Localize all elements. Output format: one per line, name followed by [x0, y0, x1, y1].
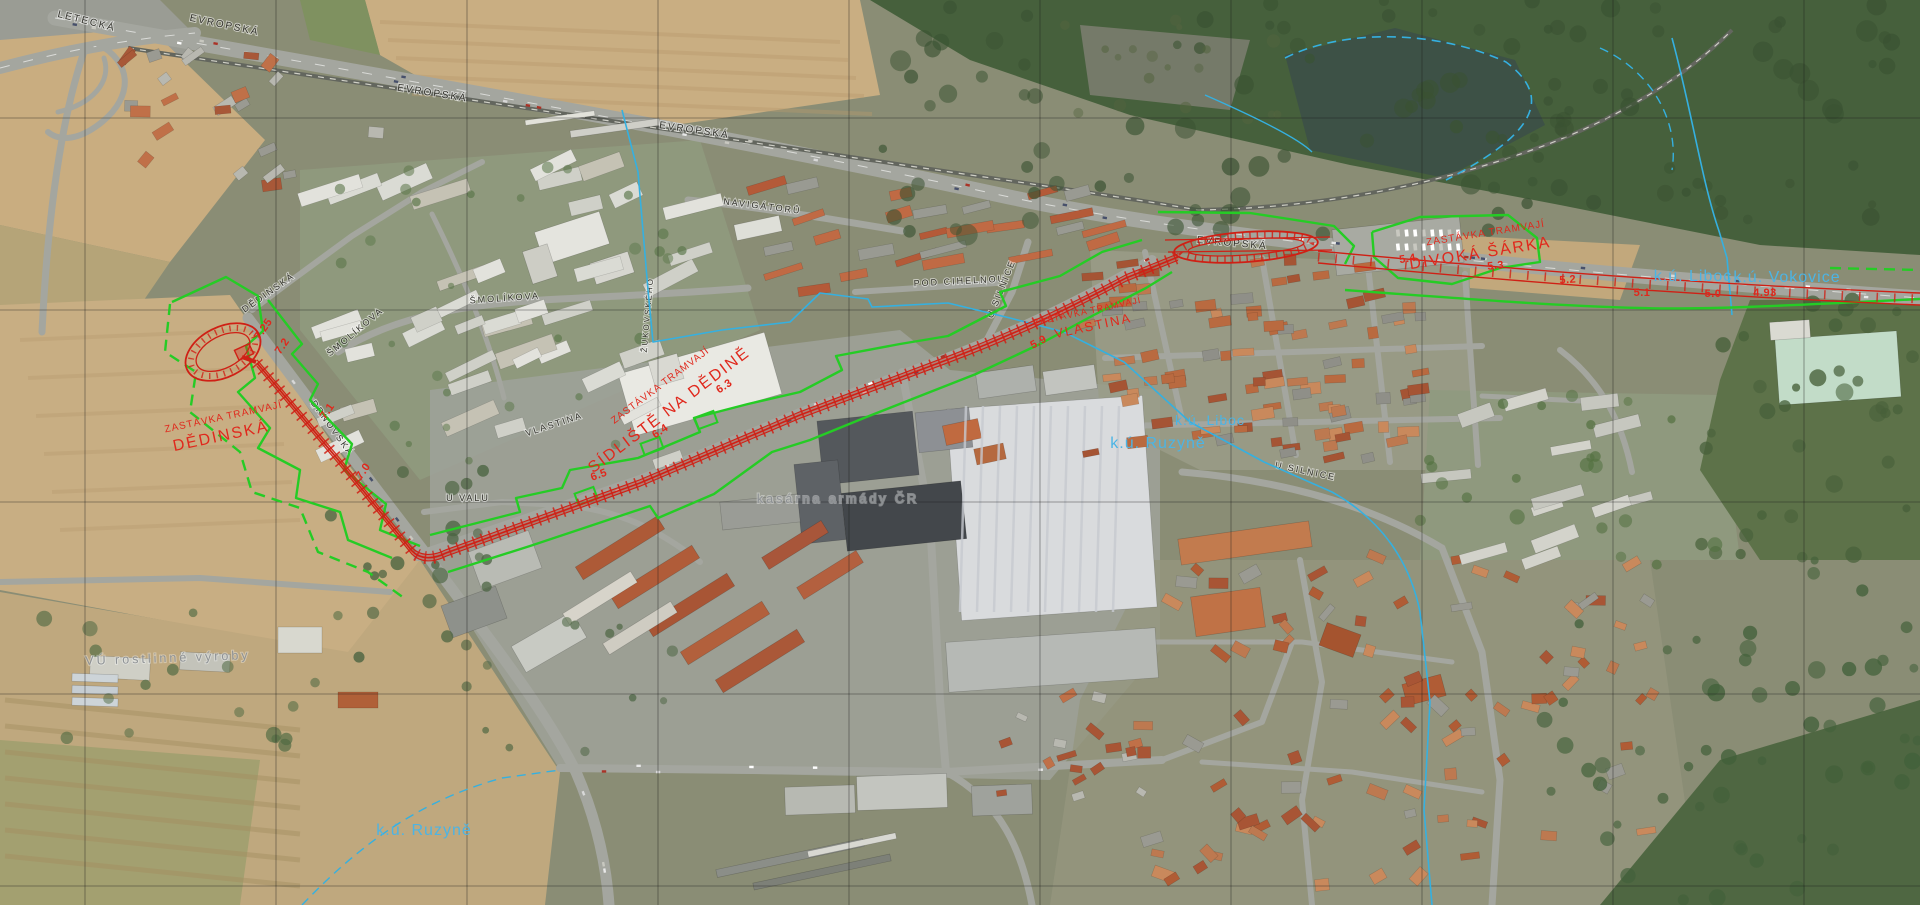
- village-bottom-right-building: [1467, 820, 1478, 828]
- building: [1769, 320, 1810, 341]
- ruzyne-grid-building: [1283, 418, 1298, 427]
- midsouth-houses-building: [1105, 742, 1121, 752]
- ruzyne-grid-building: [1264, 320, 1284, 331]
- ruzyne-grid-building: [1161, 374, 1175, 384]
- km-chainage-marker: 4.93: [1753, 287, 1776, 299]
- village-bottom-right-building: [1401, 697, 1414, 708]
- car: [749, 766, 753, 768]
- village-bottom-right-building: [1444, 768, 1457, 781]
- midsouth-houses-building: [996, 790, 1007, 797]
- parked-car: [1396, 243, 1400, 250]
- ruzyne-grid-building: [1144, 376, 1157, 385]
- cadastral-area-label: k.ú. Vokovice: [1733, 269, 1840, 286]
- village-bottom-right-building: [1281, 782, 1301, 794]
- topleft-houses-building: [130, 106, 150, 117]
- village-bottom-right-building: [1541, 831, 1557, 841]
- village-bottom-right-building: [1330, 699, 1348, 709]
- car: [1581, 267, 1586, 270]
- car: [1038, 768, 1043, 771]
- parked-car: [1404, 229, 1408, 236]
- village-bottom-right-building: [1355, 616, 1367, 627]
- km-chainage-marker: 5.3: [1487, 259, 1505, 273]
- cadastral-area-label: k.ú. Liboc: [1654, 268, 1732, 285]
- ruzyne-grid-building: [1232, 348, 1254, 356]
- ruzyne-grid-building: [1230, 293, 1253, 305]
- village-bottom-right-building: [1209, 578, 1228, 589]
- ruzyne-grid-building: [1253, 377, 1265, 386]
- ruzyne-grid-building: [1378, 421, 1389, 432]
- parked-car: [1396, 229, 1400, 236]
- parked-car: [1413, 243, 1417, 250]
- ruzyne-grid-building: [1195, 299, 1217, 312]
- village-bottom-right-building: [1532, 693, 1547, 704]
- parked-car: [1404, 243, 1408, 250]
- km-chainage-marker: 5.2: [1559, 273, 1577, 286]
- topleft-houses-building: [368, 126, 384, 138]
- topleft-houses-building: [244, 52, 260, 60]
- ruzyne-grid-building: [1292, 388, 1311, 401]
- ruzyne-grid-building: [1367, 326, 1378, 339]
- building: [338, 692, 378, 708]
- ruzyne-grid-building: [1248, 312, 1259, 321]
- parked-car: [1413, 229, 1417, 236]
- ruzyne-grid-building: [1331, 405, 1347, 418]
- ruzyne-grid-building: [1405, 344, 1417, 354]
- topleft-houses-building: [214, 105, 231, 115]
- village-br-ground: [1050, 560, 1700, 905]
- midsouth-houses-building: [1070, 765, 1083, 773]
- midsouth-houses-building: [1126, 746, 1137, 756]
- cadastral-area-label: k.ú. Ruzyně: [376, 822, 471, 839]
- village-bottom-right-building: [1437, 815, 1448, 823]
- car: [1864, 296, 1869, 299]
- car: [1331, 241, 1336, 244]
- building: [278, 627, 322, 653]
- building: [72, 673, 118, 683]
- ruzyne-grid-building: [1314, 428, 1330, 441]
- building: [856, 773, 947, 810]
- ruzyne-grid-building: [1220, 351, 1231, 361]
- ruzyne-grid-building: [1313, 270, 1330, 280]
- village-bottom-right-building: [1176, 576, 1198, 589]
- ruzyne-grid-building: [1323, 440, 1338, 452]
- building: [785, 785, 856, 815]
- km-chainage-marker: 5.0: [1705, 288, 1722, 300]
- car: [636, 765, 640, 767]
- ruzyne-grid-building: [1287, 377, 1308, 386]
- map-viewport[interactable]: LETECKÁEVROPSKÁEVROPSKÁEVROPSKÁEVROPSKÁD…: [0, 0, 1920, 905]
- cadastral-area-label: k.ú. Ruzyně: [1110, 435, 1205, 452]
- ruzyne-grid-building: [1376, 392, 1391, 404]
- building: [72, 685, 118, 695]
- village-bottom-right-building: [1620, 742, 1632, 751]
- car: [813, 766, 817, 768]
- ruzyne-grid-building: [1325, 374, 1346, 383]
- area-name-label: kasárna armády ČR: [757, 491, 919, 506]
- village-bottom-right-building: [1314, 878, 1329, 891]
- village-bottom-right-building: [1564, 667, 1580, 677]
- building: [971, 784, 1032, 816]
- ruzyne-grid-building: [1082, 272, 1104, 281]
- village-bottom-right-building: [1461, 727, 1476, 736]
- km-chainage-marker: 5.1: [1634, 287, 1651, 299]
- village-bottom-right-building: [1134, 721, 1153, 730]
- ruzyne-grid-building: [1352, 359, 1365, 369]
- cadastral-area-label: k.ú. Liboc: [1175, 412, 1245, 428]
- ruzyne-grid-building: [1415, 312, 1426, 321]
- km-chainage-marker: 5.4: [1398, 252, 1417, 266]
- car: [602, 770, 606, 772]
- map-canvas[interactable]: LETECKÁEVROPSKÁEVROPSKÁEVROPSKÁEVROPSKÁD…: [0, 0, 1920, 905]
- ruzyne-grid-building: [1271, 437, 1283, 447]
- village-bottom-right-building: [1138, 747, 1151, 759]
- street-label: U VALU: [446, 493, 490, 503]
- ruzyne-grid-building: [1402, 302, 1416, 314]
